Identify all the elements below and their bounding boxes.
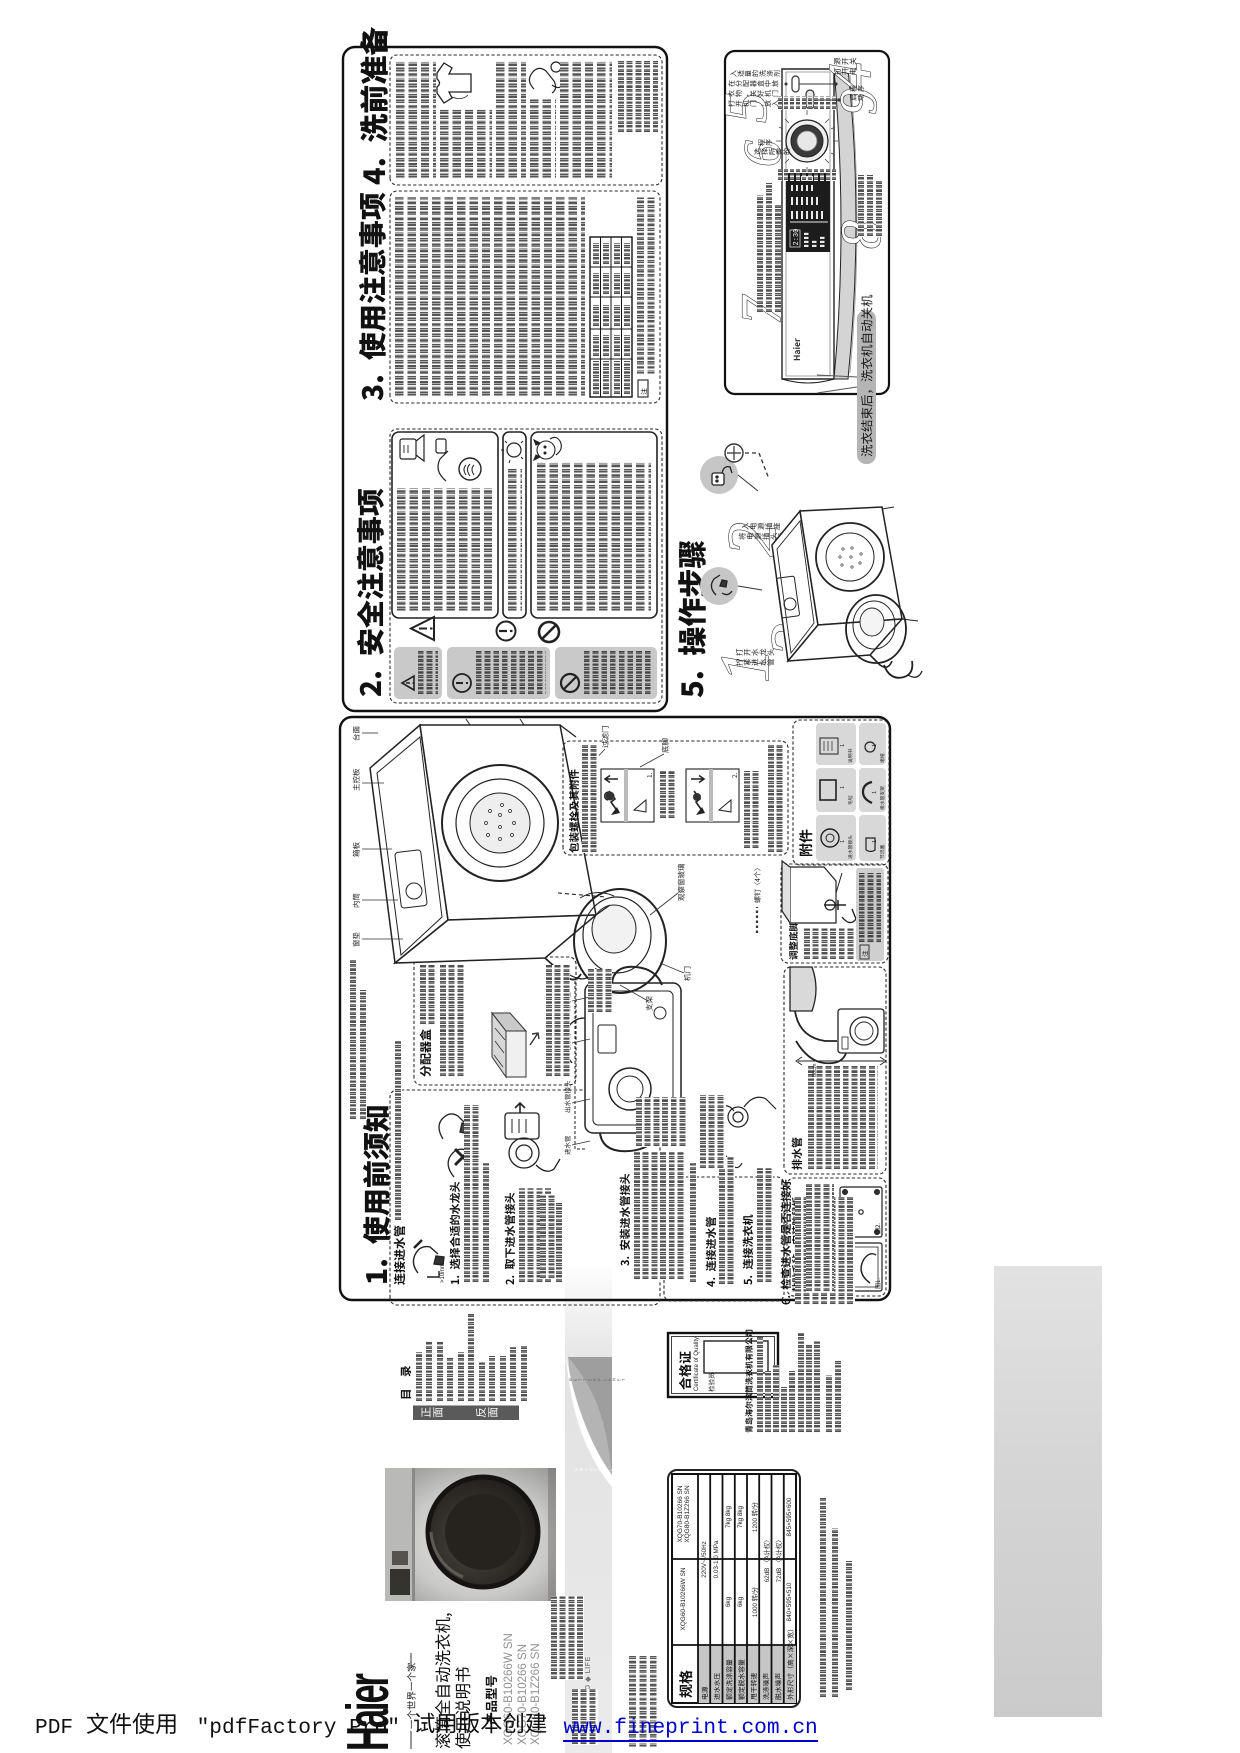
svg-text:2:30: 2:30 — [793, 229, 801, 246]
